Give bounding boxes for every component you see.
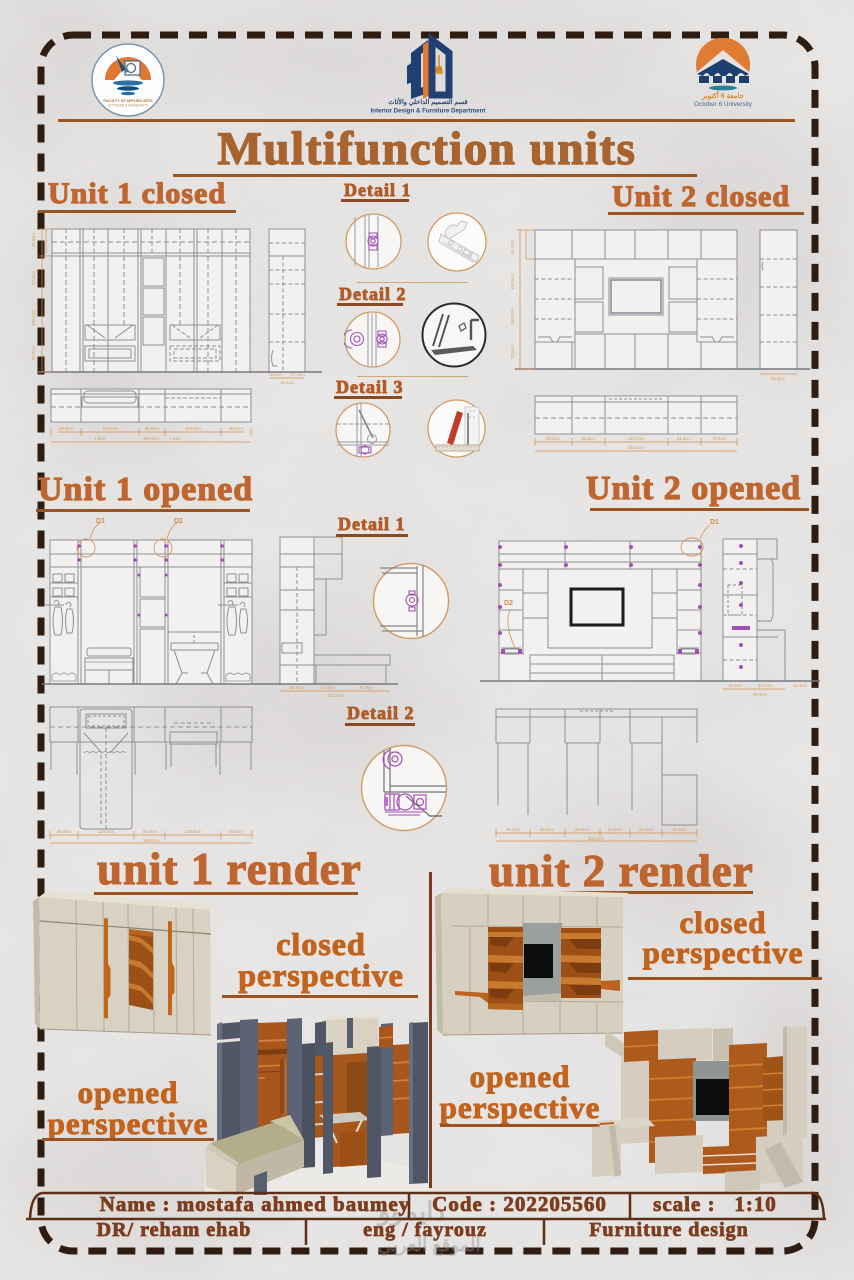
svg-text:40.0cm: 40.0cm <box>728 683 742 688</box>
svg-text:40.0cm: 40.0cm <box>359 685 373 690</box>
svg-text:48.3cm: 48.3cm <box>546 436 560 441</box>
svg-text:50.0cm: 50.0cm <box>145 426 159 431</box>
svg-text:50.0cm: 50.0cm <box>229 829 243 834</box>
svg-text:48.3cm: 48.3cm <box>672 827 686 832</box>
svg-text:D2: D2 <box>504 600 513 607</box>
svg-text:110.0cm: 110.0cm <box>628 436 644 441</box>
svg-text:D1: D1 <box>710 519 719 526</box>
svg-text:42.3cm: 42.3cm <box>793 683 807 688</box>
svg-text:48.3cm: 48.3cm <box>506 827 520 832</box>
svg-text:120.0cm: 120.0cm <box>98 829 115 834</box>
svg-text:58.3cm: 58.3cm <box>581 436 595 441</box>
svg-text:95.3cm: 95.3cm <box>753 692 767 697</box>
svg-text:60.0cm: 60.0cm <box>31 271 36 285</box>
svg-text:43.0cm: 43.0cm <box>321 685 335 690</box>
svg-text:55.0cm: 55.0cm <box>608 827 622 832</box>
svg-text:50.0cm: 50.0cm <box>510 240 515 254</box>
svg-text:70.0cm: 70.0cm <box>712 436 726 441</box>
svg-text:200.0cm: 200.0cm <box>31 309 36 326</box>
svg-text:202.0cm: 202.0cm <box>328 693 345 698</box>
svg-text:25.0cm: 25.0cm <box>268 372 282 377</box>
svg-text:FACULTY OF APPLIED ARTS: FACULTY OF APPLIED ARTS <box>103 99 153 103</box>
svg-text:50.0cm: 50.0cm <box>229 426 243 431</box>
svg-text:350.0cm: 350.0cm <box>588 836 605 841</box>
svg-text:58.3cm: 58.3cm <box>639 827 653 832</box>
svg-text:OCTOBER 6 UNIVERSITY: OCTOBER 6 UNIVERSITY <box>108 104 150 108</box>
svg-text:200.0cm: 200.0cm <box>510 308 515 325</box>
svg-text:50.0cm: 50.0cm <box>59 426 73 431</box>
svg-text:40.0cm: 40.0cm <box>758 683 772 688</box>
svg-text:D2: D2 <box>174 518 183 525</box>
svg-text:30.0cm: 30.0cm <box>31 233 36 247</box>
svg-text:90.0cm: 90.0cm <box>31 346 36 360</box>
svg-text:45.0cm: 45.0cm <box>280 380 294 385</box>
svg-text:120.0cm: 120.0cm <box>102 426 119 431</box>
svg-text:110.0cm: 110.0cm <box>510 274 515 290</box>
svg-text:1.8cm: 1.8cm <box>94 436 106 441</box>
svg-text:7.0cm: 7.0cm <box>169 436 181 441</box>
svg-text:55.0cm: 55.0cm <box>575 827 589 832</box>
svg-text:October 6 University: October 6 University <box>694 101 753 108</box>
svg-text:27.0cm: 27.0cm <box>291 372 305 377</box>
svg-text:390.0cm: 390.0cm <box>143 436 160 441</box>
svg-text:120.0cm: 120.0cm <box>185 426 202 431</box>
svg-text:350.0cm: 350.0cm <box>628 445 645 450</box>
svg-text:جامعة 6 أكتوبر: جامعة 6 أكتوبر <box>701 90 744 100</box>
svg-text:60.0cm: 60.0cm <box>290 685 304 690</box>
svg-text:62.3cm: 62.3cm <box>677 436 691 441</box>
svg-text:D1: D1 <box>96 518 105 525</box>
svg-text:50.0cm: 50.0cm <box>57 829 71 834</box>
svg-text:Interior Design & Furniture De: Interior Design & Furniture Department <box>371 108 486 115</box>
svg-text:50.0cm: 50.0cm <box>143 829 157 834</box>
svg-text:58.3cm: 58.3cm <box>540 827 554 832</box>
svg-text:قسم التصميم الداخلي والأثاث: قسم التصميم الداخلي والأثاث <box>388 96 467 107</box>
svg-text:70.0cm: 70.0cm <box>510 345 515 359</box>
svg-text:62.3cm: 62.3cm <box>771 376 785 381</box>
svg-text:120.0cm: 120.0cm <box>185 829 202 834</box>
